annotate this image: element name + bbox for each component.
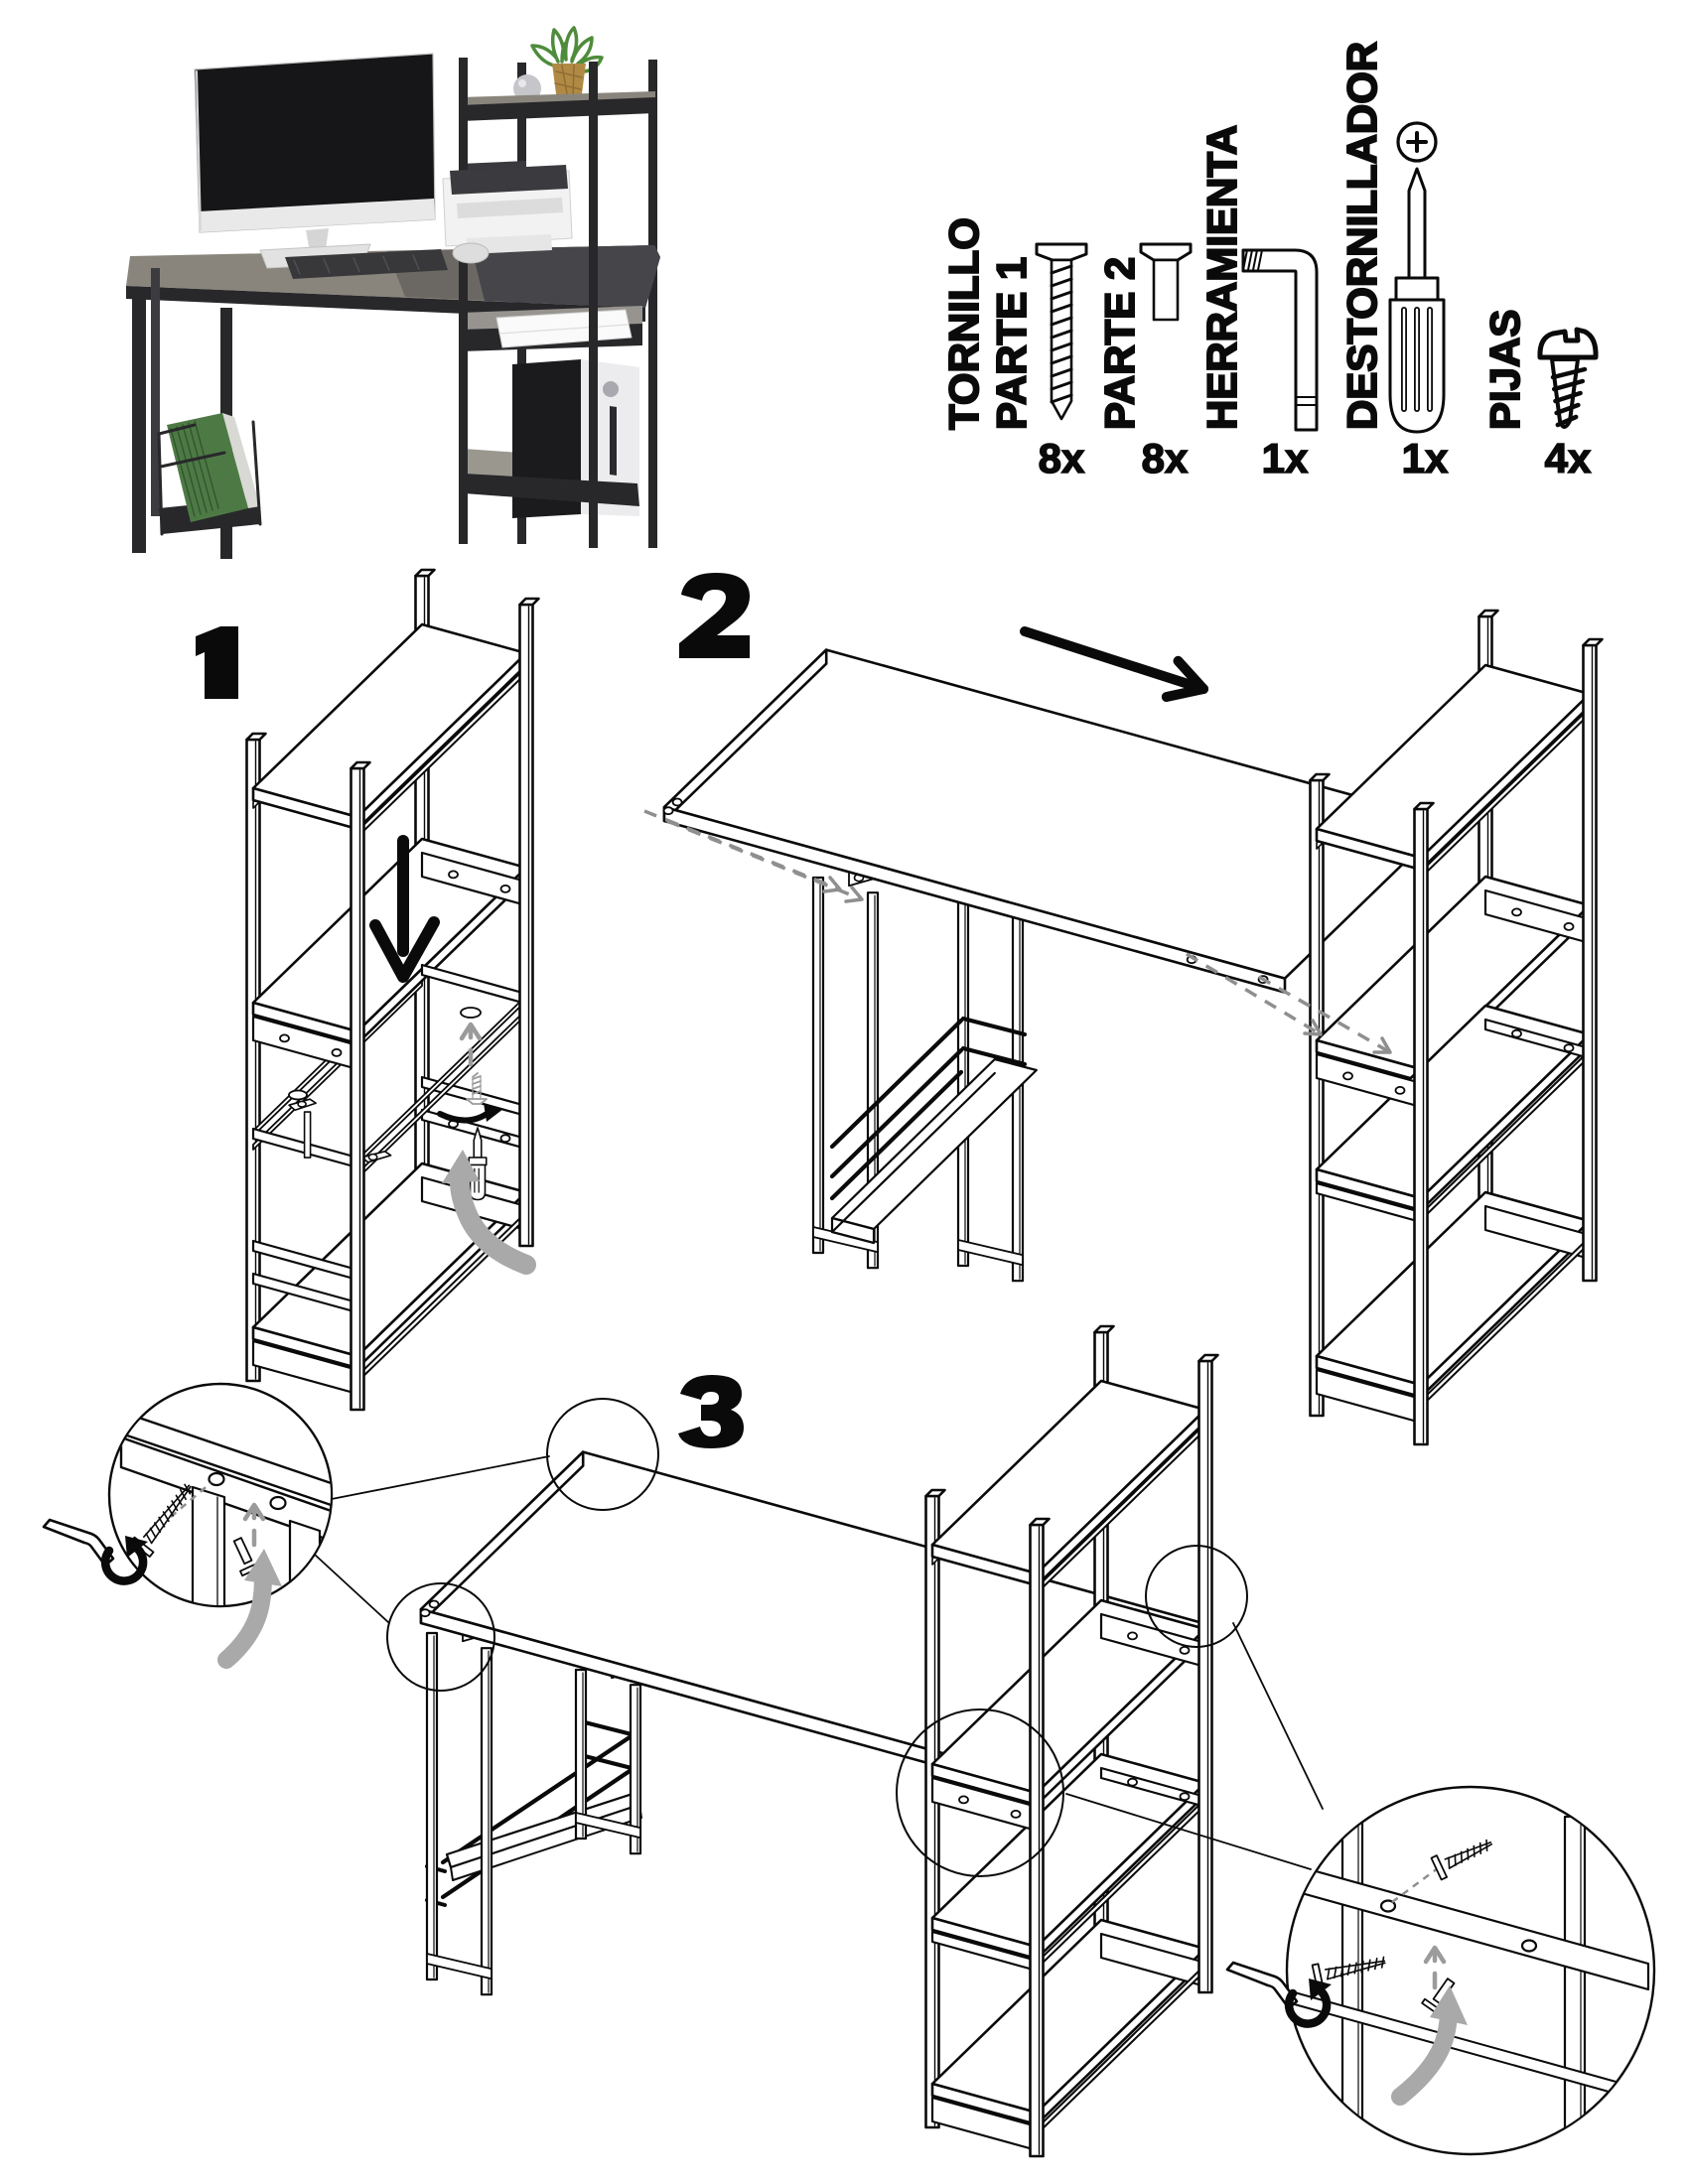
svg-text:8x: 8x — [1039, 435, 1085, 481]
svg-text:PIJAS: PIJAS — [1481, 310, 1528, 430]
svg-text:PARTE 2: PARTE 2 — [1096, 257, 1143, 430]
svg-text:TORNILLO: TORNILLO — [940, 217, 987, 430]
svg-text:1x: 1x — [1262, 435, 1309, 481]
svg-text:1x: 1x — [1402, 435, 1449, 481]
svg-text:DESTORNILLADOR: DESTORNILLADOR — [1338, 42, 1385, 430]
svg-text:4x: 4x — [1545, 435, 1592, 481]
svg-text:HERRAMIENTA: HERRAMIENTA — [1198, 125, 1245, 430]
svg-text:8x: 8x — [1142, 435, 1189, 481]
svg-text:PARTE 1: PARTE 1 — [988, 257, 1035, 430]
